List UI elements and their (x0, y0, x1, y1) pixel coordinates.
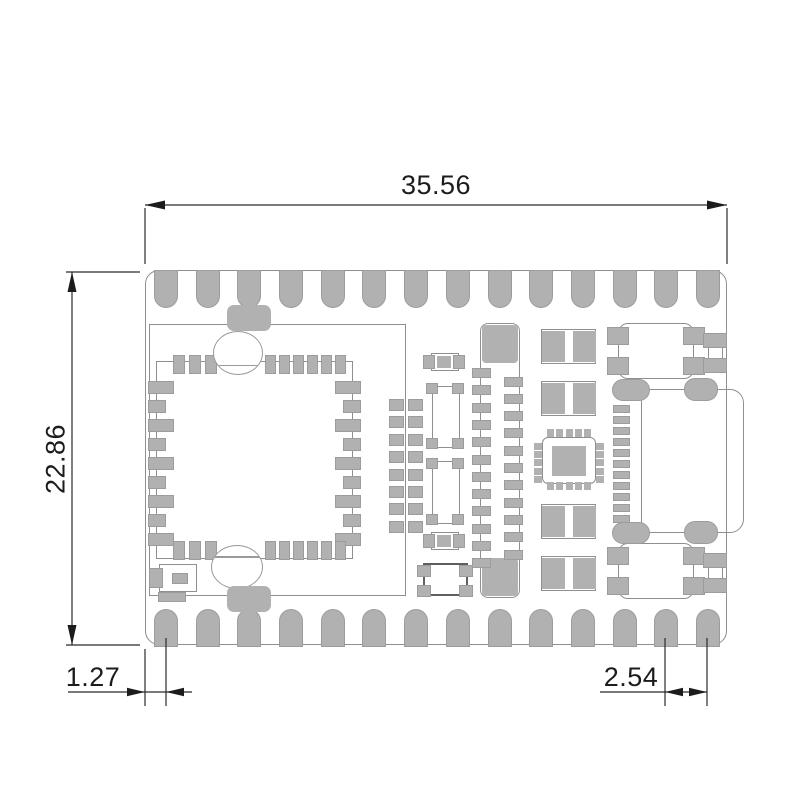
small-crystal-pad (158, 592, 186, 602)
usb-shell-pad (612, 522, 650, 544)
castellated-pad-bottom (529, 609, 553, 647)
castellated-pad-bottom (154, 609, 178, 647)
small-qfn-pad (596, 459, 604, 466)
crystal-circle-bottom (211, 545, 263, 589)
crystal-circle-top (213, 331, 263, 375)
castellated-pad-bottom (488, 609, 512, 647)
pcb-board-outline (145, 270, 727, 645)
usb-pin (613, 515, 630, 523)
main-qfn-pad-right (335, 495, 361, 508)
main-qfn-pad-top (293, 355, 304, 374)
small-qfn-pad (547, 482, 554, 490)
sot23-pad (426, 514, 438, 525)
castellated-pad-bottom (654, 609, 678, 647)
dimension-height-label: 22.86 (41, 399, 72, 519)
castellated-pad-top (321, 270, 345, 308)
small-crystal-pad (149, 568, 163, 588)
main-qfn-pad-left (148, 381, 174, 394)
two-pad-passive-pad (542, 558, 565, 589)
usb-pin (613, 438, 630, 446)
main-qfn-pad-bottom (265, 541, 276, 560)
arrowhead-left (166, 688, 184, 697)
castellated-pad-top (613, 270, 637, 308)
small-qfn-center-pad (552, 446, 586, 476)
sot23-pad (452, 514, 464, 525)
usb-pin (613, 427, 630, 435)
header-pin-right (504, 446, 523, 456)
main-qfn-pad-left (148, 495, 174, 508)
header-pin-right (504, 532, 523, 542)
package-pad (459, 565, 473, 577)
small-qfn-pad (596, 443, 604, 450)
vertical-passive-pad (703, 333, 727, 348)
main-qfn-pad-top (335, 355, 346, 374)
arrowhead-left (145, 201, 165, 210)
sot23-pad (452, 383, 464, 394)
shield-stub-component-top (227, 305, 271, 331)
array-pad (408, 521, 423, 533)
array-pad (408, 416, 423, 428)
main-qfn-pad-top (307, 355, 318, 374)
button-pad (607, 577, 629, 595)
castellated-pad-bottom (696, 609, 720, 647)
two-pad-passive-pad (573, 506, 596, 537)
passive-pad (453, 355, 465, 369)
small-qfn-pad (596, 451, 604, 458)
vertical-passive-pad (703, 358, 727, 373)
small-qfn-pad (534, 476, 542, 483)
two-pad-passive-pad (573, 558, 596, 589)
small-qfn-pad (575, 482, 582, 490)
passive-pad (453, 534, 465, 548)
castellated-pad-bottom (404, 609, 428, 647)
array-pad (389, 451, 404, 463)
array-pad (389, 521, 404, 533)
castellated-pad-top (237, 270, 261, 308)
main-qfn-pad-left (148, 419, 174, 432)
small-qfn-pad (534, 443, 542, 450)
small-qfn-pad (566, 482, 573, 490)
header-pin-right (504, 428, 523, 438)
dimension-pin-offset-label: 1.27 (43, 662, 143, 693)
small-qfn-pad (547, 429, 554, 437)
header-pin-right (504, 550, 523, 560)
arrowhead-right (689, 688, 707, 697)
shield-stub-component-bottom (227, 586, 271, 612)
main-qfn-pad-right (335, 457, 361, 470)
main-qfn-pad-bottom (279, 541, 290, 560)
sot23-pad (452, 458, 464, 469)
castellated-pad-bottom (362, 609, 386, 647)
main-qfn-pad-top (279, 355, 290, 374)
button-pad (607, 547, 629, 565)
button-pad (607, 327, 629, 345)
usb-shell-pad (684, 521, 718, 544)
two-pad-passive-pad (573, 383, 596, 414)
two-pad-passive-pad (573, 331, 596, 362)
dimension-pin-pitch-label: 2.54 (581, 662, 681, 693)
castellated-pad-top (279, 270, 303, 308)
main-qfn-pad-left (148, 400, 166, 413)
small-qfn-pad (556, 482, 563, 490)
castellated-pad-bottom (279, 609, 303, 647)
usb-pin (613, 504, 630, 512)
main-qfn-pad-bottom (321, 541, 332, 560)
header-pin-right (504, 498, 523, 508)
passive-pad (423, 355, 435, 369)
small-qfn-pad (575, 429, 582, 437)
small-qfn-pad (534, 468, 542, 475)
header-pin-right (504, 515, 523, 525)
array-pad (389, 416, 404, 428)
main-qfn-pad-top (173, 355, 185, 374)
array-pad (408, 434, 423, 446)
usb-pin (613, 471, 630, 479)
crystal-chord-bottom (214, 556, 260, 558)
package-pad (459, 585, 473, 597)
header-pin-right (504, 394, 523, 404)
castellated-pad-top (446, 270, 470, 308)
button-pad (683, 547, 705, 565)
usb-pin (613, 460, 630, 468)
array-pad (389, 434, 404, 446)
castellated-pad-top (529, 270, 553, 308)
crystal-chord-top (216, 365, 260, 367)
header-pin-left (472, 558, 491, 568)
array-pad (408, 503, 423, 515)
main-qfn-pad-right (343, 400, 361, 413)
header-pin-left (472, 368, 491, 378)
usb-pin (613, 482, 630, 490)
sot23-pad (452, 438, 464, 449)
header-pin-left (472, 472, 491, 482)
main-qfn-outline (156, 361, 353, 559)
small-qfn-pad (566, 429, 573, 437)
array-pad (408, 399, 423, 411)
sot23-pad (426, 458, 438, 469)
main-qfn-pad-bottom (335, 541, 346, 560)
array-pad (389, 399, 404, 411)
header-pin-right (504, 463, 523, 473)
castellated-pad-top (154, 270, 178, 308)
castellated-pad-top (696, 270, 720, 308)
castellated-pad-bottom (237, 609, 261, 647)
array-pad (408, 451, 423, 463)
main-qfn-pad-bottom (293, 541, 304, 560)
main-qfn-pad-left (148, 457, 174, 470)
castellated-pad-top (571, 270, 595, 308)
passive-pad (437, 535, 451, 547)
castellated-pad-top (362, 270, 386, 308)
array-pad (408, 469, 423, 481)
sot23-pad (426, 438, 438, 449)
header-pin-left (472, 524, 491, 534)
castellated-pad-bottom (571, 609, 595, 647)
arrowhead-down (68, 625, 77, 645)
header-pin-left (472, 506, 491, 516)
mechanical-drawing-canvas: 35.56 22.86 1.27 2.54 (0, 0, 800, 800)
two-pad-passive-pad (542, 506, 565, 537)
main-qfn-pad-top (321, 355, 332, 374)
dimension-width-label: 35.56 (336, 170, 536, 201)
header-pin-left (472, 437, 491, 447)
header-pin-left (472, 541, 491, 551)
package-pad (417, 585, 431, 597)
button-pad (683, 577, 705, 595)
header-pin-right (504, 377, 523, 387)
two-pad-passive-pad (542, 383, 565, 414)
button-pad (607, 357, 629, 375)
button-pad (683, 357, 705, 375)
castellated-pad-top (654, 270, 678, 308)
sot23-pad (426, 383, 438, 394)
array-pad (389, 469, 404, 481)
usb-pin (613, 405, 630, 413)
header-pin-left (472, 420, 491, 430)
castellated-pad-top (488, 270, 512, 308)
small-crystal-pad (172, 573, 188, 584)
main-qfn-pad-top (189, 355, 201, 374)
castellated-pad-top (196, 270, 220, 308)
header-pin-right (504, 480, 523, 490)
header-connector-cap-top (482, 325, 518, 363)
small-qfn-pad (534, 459, 542, 466)
usb-pin (613, 416, 630, 424)
usb-shell-pad (684, 378, 718, 401)
small-qfn-pad (584, 429, 591, 437)
main-qfn-pad-left (148, 438, 166, 451)
main-qfn-pad-bottom (307, 541, 318, 560)
button-pad (683, 327, 705, 345)
castellated-pad-bottom (196, 609, 220, 647)
two-pad-passive-pad (542, 331, 565, 362)
usb-shell-pad (612, 379, 650, 401)
castellated-pad-bottom (446, 609, 470, 647)
main-qfn-pad-right (343, 438, 361, 451)
header-pin-left (472, 385, 491, 395)
usb-pin (613, 493, 630, 501)
usb-connector-body-outline (641, 389, 744, 533)
header-pin-left (472, 455, 491, 465)
usb-pin (613, 449, 630, 457)
header-pin-left (472, 403, 491, 413)
main-qfn-pad-top (265, 355, 276, 374)
main-qfn-pad-right (335, 381, 361, 394)
main-qfn-pad-left (148, 476, 166, 489)
main-qfn-pad-left (148, 533, 174, 546)
arrowhead-right (707, 201, 727, 210)
small-qfn-pad (584, 482, 591, 490)
small-qfn-pad (596, 468, 604, 475)
small-qfn-pad (556, 429, 563, 437)
array-pad (408, 486, 423, 498)
main-qfn-pad-left (148, 514, 166, 527)
vertical-passive-pad (703, 578, 727, 593)
package-pad (417, 565, 431, 577)
castellated-pad-top (404, 270, 428, 308)
main-qfn-pad-right (343, 476, 361, 489)
main-qfn-pad-right (343, 514, 361, 527)
header-pin-left (472, 489, 491, 499)
array-pad (389, 503, 404, 515)
array-pad (389, 486, 404, 498)
castellated-pad-bottom (613, 609, 637, 647)
small-qfn-pad (596, 476, 604, 483)
main-qfn-pad-right (335, 419, 361, 432)
header-pin-right (504, 411, 523, 421)
vertical-passive-pad (703, 553, 727, 568)
main-qfn-pad-bottom (189, 541, 201, 560)
castellated-pad-bottom (321, 609, 345, 647)
main-qfn-pad-bottom (173, 541, 185, 560)
arrowhead-up (68, 272, 77, 292)
passive-pad (437, 356, 451, 368)
small-qfn-pad (534, 451, 542, 458)
passive-pad (423, 534, 435, 548)
